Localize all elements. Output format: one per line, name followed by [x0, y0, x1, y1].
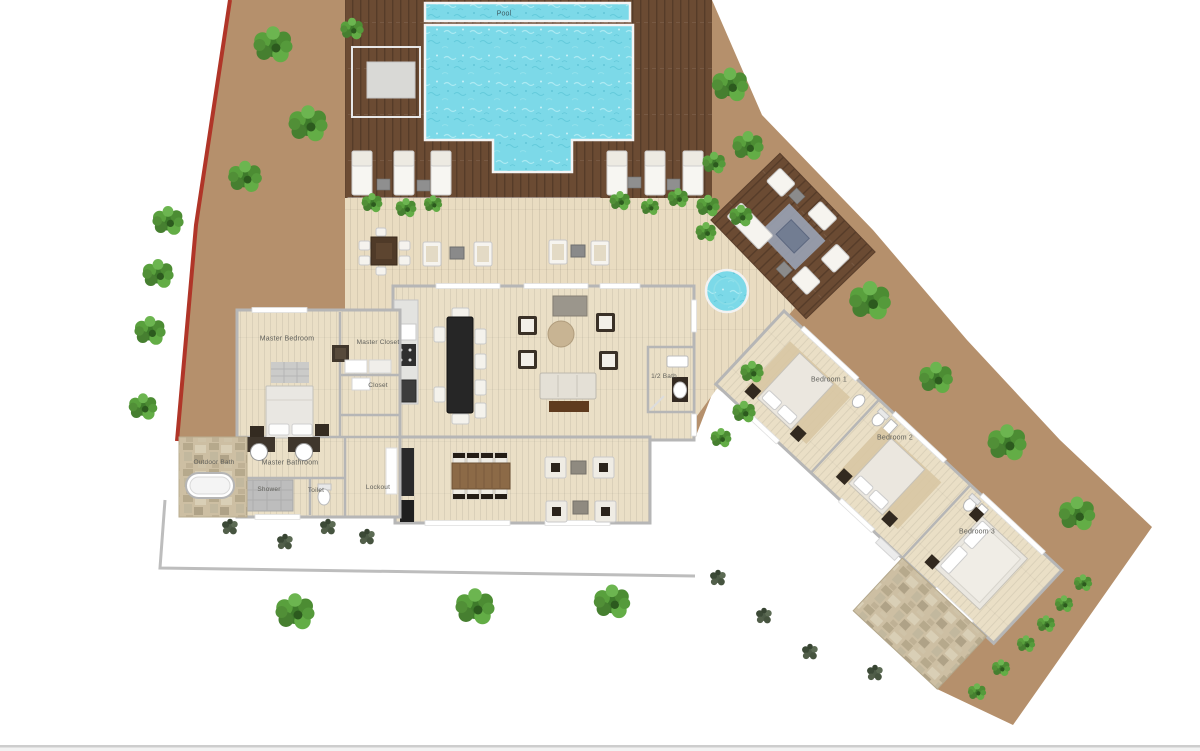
bush-plant — [142, 259, 173, 288]
island-table — [447, 317, 473, 413]
room-label-lockout: Lockout — [366, 485, 390, 492]
room-label-master-closet: Master Closet — [357, 340, 400, 347]
room-label-half-bath: 1/2 Bath — [651, 374, 677, 381]
scrub-plant — [222, 519, 238, 535]
room-label-toilet: Toilet — [308, 488, 324, 495]
spa-hot-tub — [706, 270, 748, 312]
bush-plant — [276, 593, 315, 629]
deck-pad — [367, 62, 415, 98]
scrub-plant — [867, 665, 883, 681]
scrub-plant — [756, 608, 772, 624]
room-label-bedroom-3: Bedroom 3 — [959, 529, 995, 536]
room-label-outdoor-bath: Outdoor Bath — [193, 460, 234, 467]
image-bottom-edge — [0, 745, 1200, 748]
floor-plan-canvas — [0, 0, 1200, 751]
scrub-plant — [320, 519, 336, 535]
room-label-pool: Pool — [497, 11, 512, 18]
room-label-bedroom-1: Bedroom 1 — [811, 377, 847, 384]
lower-room — [395, 437, 650, 526]
coffee-table — [548, 321, 574, 347]
bush-plant — [152, 206, 183, 235]
outdoor-bath — [179, 437, 247, 517]
sofa — [540, 373, 596, 399]
scrub-plant — [802, 644, 818, 660]
toilet-fixture — [674, 382, 687, 398]
room-label-master-bedroom: Master Bedroom — [260, 336, 315, 343]
bush-plant — [134, 316, 165, 345]
room-label-closet: Closet — [368, 383, 388, 390]
floor-plan: Pool Master Bedroom Master Closet Closet… — [0, 0, 1200, 751]
scrub-plant — [359, 529, 375, 545]
bush-plant — [711, 428, 732, 447]
pool-lap-lane — [425, 3, 630, 21]
scrub-plant — [710, 570, 726, 586]
rug — [549, 401, 589, 412]
room-label-master-bathroom: Master Bathroom — [262, 460, 319, 467]
bush-plant — [456, 588, 495, 624]
bush-plant — [594, 585, 630, 619]
image-bottom-strip — [0, 748, 1200, 751]
game-table-set — [452, 453, 510, 499]
room-label-bedroom-2: Bedroom 2 — [877, 435, 913, 442]
pool-deck — [345, 0, 712, 211]
bush-plant — [129, 393, 158, 419]
room-label-shower: Shower — [257, 487, 280, 494]
scrub-plant — [277, 534, 293, 550]
